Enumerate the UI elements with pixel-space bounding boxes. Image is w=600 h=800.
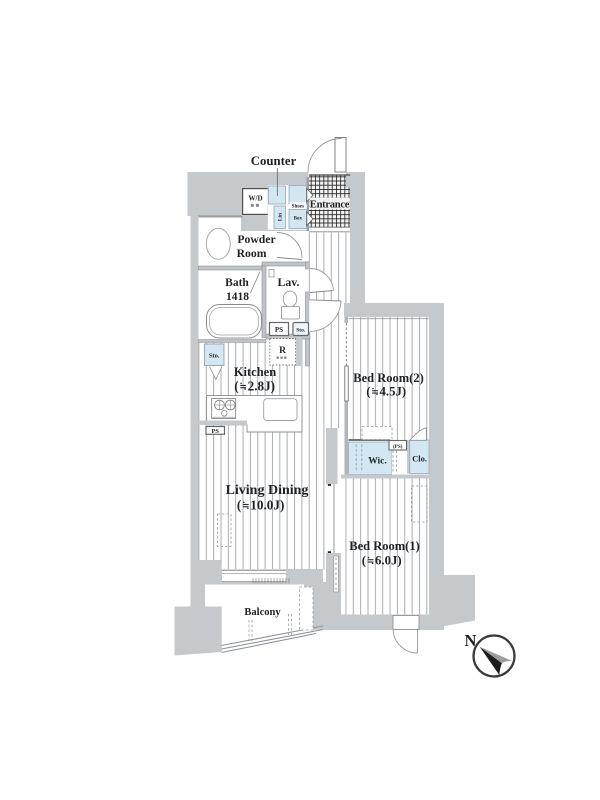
svg-text:10.0J): 10.0J) — [250, 498, 284, 513]
svg-text:Clo.: Clo. — [412, 454, 427, 464]
svg-text:Lin: Lin — [278, 213, 284, 221]
svg-text:(: ( — [237, 498, 241, 513]
svg-text:4.5J): 4.5J) — [380, 385, 407, 399]
svg-text:Bed Room(2): Bed Room(2) — [353, 371, 423, 385]
svg-text:Sto.: Sto. — [296, 328, 306, 334]
svg-text:Sto.: Sto. — [209, 353, 220, 360]
svg-text:R: R — [279, 346, 286, 356]
svg-text:Wic.: Wic. — [368, 457, 387, 467]
svg-text:Counter: Counter — [251, 154, 297, 168]
svg-text:Lav.: Lav. — [278, 275, 300, 289]
svg-text:PS: PS — [212, 428, 220, 435]
svg-text:Balcony: Balcony — [244, 607, 281, 618]
svg-text:(: ( — [234, 379, 238, 394]
svg-text:Box: Box — [294, 217, 303, 222]
svg-text:Bath: Bath — [225, 277, 249, 289]
svg-text:N: N — [465, 631, 477, 650]
svg-text:Kitchen: Kitchen — [234, 365, 276, 379]
svg-text:Bed Room(1): Bed Room(1) — [349, 539, 419, 553]
svg-text:1418: 1418 — [226, 291, 249, 303]
svg-text:PS: PS — [275, 326, 283, 334]
svg-text:Living Dining: Living Dining — [226, 483, 309, 498]
svg-text:2.8J): 2.8J) — [248, 379, 275, 394]
svg-text:(PS): (PS) — [393, 443, 403, 450]
svg-text:Powder: Powder — [237, 233, 275, 246]
svg-text:Entrance: Entrance — [310, 200, 350, 211]
svg-text:6.0J): 6.0J) — [375, 554, 402, 568]
svg-text:Shoes: Shoes — [292, 204, 304, 209]
svg-text:(: ( — [366, 385, 370, 399]
svg-text:(: ( — [362, 554, 366, 568]
svg-text:W/D: W/D — [249, 195, 263, 203]
svg-text:Room: Room — [237, 247, 267, 260]
